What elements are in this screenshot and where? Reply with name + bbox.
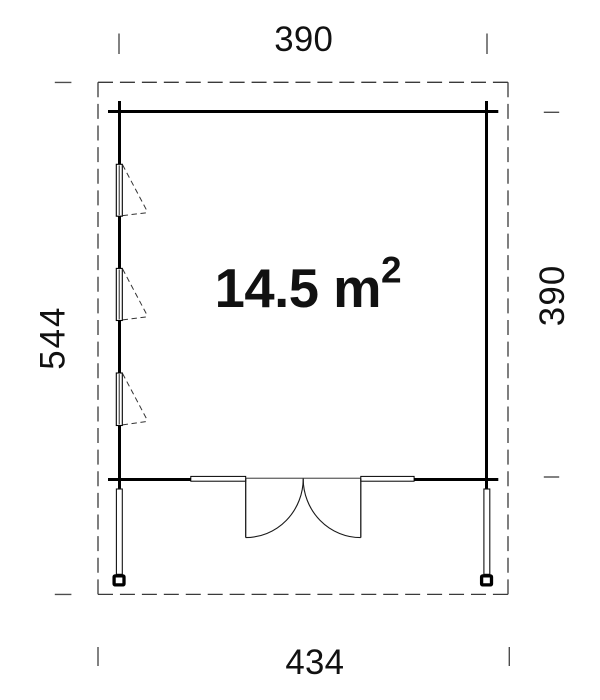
svg-text:390: 390 (274, 20, 333, 59)
svg-text:544: 544 (34, 306, 73, 370)
svg-text:434: 434 (285, 643, 344, 682)
svg-text:14.5 m2: 14.5 m2 (215, 249, 401, 319)
svg-text:390: 390 (533, 265, 572, 327)
